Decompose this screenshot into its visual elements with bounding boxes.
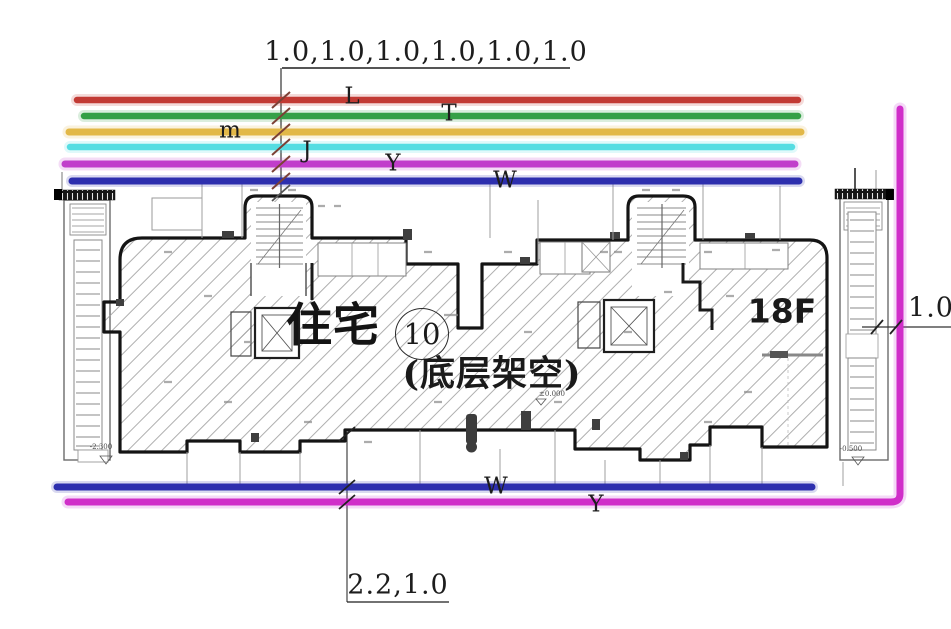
elevation-left: -2.300	[90, 443, 112, 451]
stair-tower-left	[251, 202, 312, 300]
utility-label-J: J	[302, 140, 311, 163]
entry-pier	[466, 414, 477, 453]
ground-floor-note: (底层架空)	[402, 357, 581, 392]
utility-label-W-bottom: W	[484, 476, 508, 499]
elevation-center: ±0.000	[539, 390, 565, 398]
balcony-outline	[152, 198, 202, 230]
elevation-right: -0.500	[840, 445, 862, 453]
dimension-bottom: 2.2,1.0	[347, 572, 448, 599]
unit-number: 10	[404, 317, 441, 351]
utility-label-W: W	[493, 170, 517, 193]
building-name: 住宅	[286, 302, 380, 348]
dimension-top: 1.0,1.0,1.0,1.0,1.0,1.0	[264, 39, 588, 66]
floor-count: 18F	[748, 295, 816, 328]
utility-label-m: m	[219, 120, 241, 143]
utility-label-T: T	[441, 103, 456, 126]
dimension-right: 1.0	[908, 295, 951, 322]
utility-label-L: L	[344, 86, 359, 109]
architectural-site-plan: { "annotations": { "top_dimension": "1.0…	[0, 0, 951, 629]
main-building-outline	[104, 196, 827, 460]
utility-label-Y: Y	[385, 153, 400, 176]
utility-label-Y-bottom: Y	[588, 494, 603, 517]
elevator-core-right	[578, 300, 654, 352]
unit-number-bubble: 10	[395, 308, 449, 360]
right-stair-strip	[835, 168, 894, 465]
